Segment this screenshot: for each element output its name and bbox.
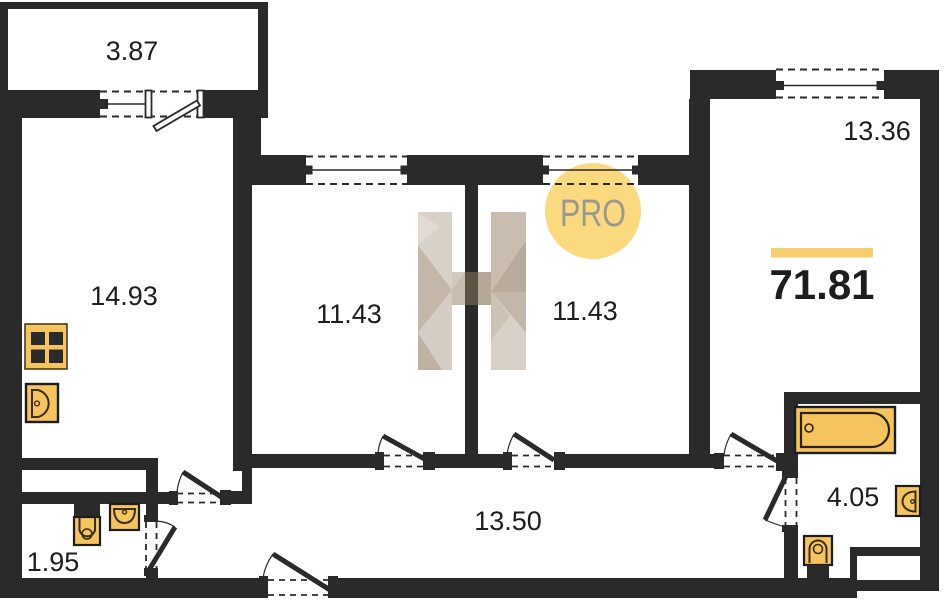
svg-text:71.81: 71.81 [769,261,874,308]
svg-text:PRO: PRO [560,193,626,235]
svg-text:4.05: 4.05 [827,482,880,512]
svg-text:1.95: 1.95 [27,547,80,577]
svg-text:11.43: 11.43 [316,299,382,329]
svg-text:11.43: 11.43 [552,296,618,326]
svg-text:13.36: 13.36 [843,116,911,146]
svg-text:13.50: 13.50 [474,506,542,536]
svg-text:14.93: 14.93 [90,281,158,311]
svg-text:3.87: 3.87 [106,36,159,66]
